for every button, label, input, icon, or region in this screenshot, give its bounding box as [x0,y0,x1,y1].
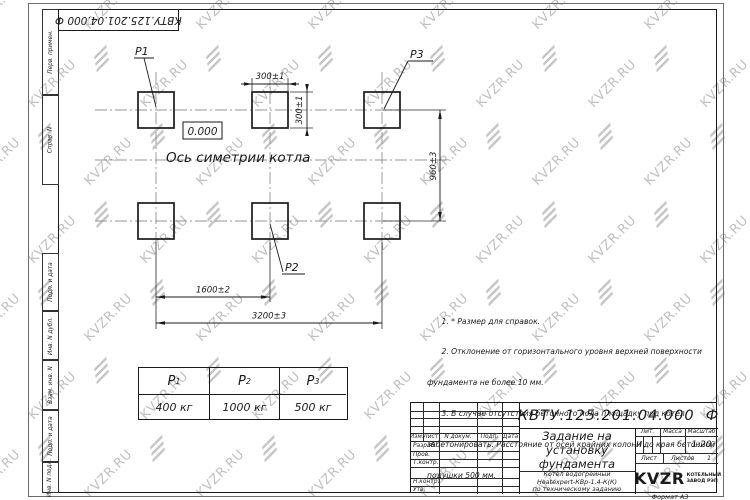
tb-document-title: Задание на установку фундамента [519,428,635,471]
tb-line [652,436,653,453]
tb-line [643,436,644,453]
tb-mass-value: - [660,436,685,453]
p-sub: 1 [175,377,180,386]
p-sub: 2 [246,377,251,386]
arrow [305,84,309,92]
load-table-header-p3: P3 [279,368,346,394]
tb-scale-header: Масштаб [685,428,718,436]
tb-col-ndocum: N докум. [439,433,477,441]
label-p3: P3 [410,48,424,61]
tb-row-utv: Утв. [411,486,439,494]
tb-lit-value: И [635,436,643,453]
arrow [156,295,165,299]
p-base: P [238,374,246,389]
tb-sheet-label: Лист [635,453,663,463]
load-value-p2: 1000 кг [209,394,279,419]
tb-product-name: Котел водогрейный Heatexpert-КВр-1,4-К(К… [519,471,635,494]
kvzr-logo-subtext: КОТЕЛЬНЫЙ ЗАВОД РЭП [687,473,721,484]
dim-text-col-spacing: 1600±2 [196,286,230,296]
arrow [156,321,165,325]
tb-sheets-value: 1 [703,453,715,463]
arrow [305,128,309,136]
arrow [244,82,252,86]
tb-col-list: Лист [423,433,440,441]
tb-col-data: Дата [502,433,519,441]
tb-line [477,403,478,494]
tb-scale-value: 1:20 [685,436,718,453]
p-sub: 3 [314,377,319,386]
arrow [373,321,382,325]
tb-row-nkontr: Н.контр. [411,478,439,486]
leader-p2 [270,224,283,272]
tb-row-blank [411,467,439,478]
load-value-p3: 500 кг [279,394,346,419]
title-line: Задание на [542,429,612,443]
tb-mass-header: Масса [660,428,685,436]
label-p2: P2 [285,261,299,274]
elevation-value: 0.000 [187,126,217,138]
title-block: Изм. Лист N докум. Подп. Дата Разраб. Пр… [410,402,717,493]
logo-sub-line: ЗАВОД РЭП [687,479,721,485]
p-base: P [307,374,315,389]
title-line: установку [546,443,608,457]
tb-line [411,426,519,427]
tb-row-prov: Пров. [411,451,439,459]
tb-col-izm: Изм. [411,433,423,441]
tb-line [411,418,519,419]
note-line: 1. * Размер для справок. [427,317,723,327]
label-p1: P1 [135,45,149,58]
tb-col-podp: Подп. [477,433,502,441]
note-line: 2. Отклонение от горизонтального уровня … [427,347,723,357]
title-line: фундамента [539,457,615,471]
dim-text-row-spacing: 960±3 [429,152,439,181]
axis-caption: Ось симетрии котла [166,150,310,166]
p-base: P [168,374,176,389]
tb-row-razrab: Разраб. [411,441,439,451]
leader-p1 [144,58,156,107]
arrow [261,295,270,299]
arrow [438,110,442,119]
load-table-header-p2: P2 [209,368,279,394]
note-line: фундамента не более 10 мм. [427,378,723,388]
product-line: по техническому заданию [533,486,622,493]
format-note: Формат А3 [620,493,720,500]
leader-p3 [384,61,408,109]
tb-line [502,403,503,494]
dim-text-pad-width: 300±1 [256,72,285,82]
load-table-header-p1: P1 [139,368,209,394]
kvzr-logo-text: KVZR [634,469,685,488]
load-value-p1: 400 кг [139,394,209,419]
dim-text-total-width: 3200±3 [252,312,286,322]
tb-company-logo: KVZR КОТЕЛЬНЫЙ ЗАВОД РЭП [635,463,718,494]
logo-sub-line: КОТЕЛЬНЫЙ [687,473,721,479]
arrow [438,212,442,221]
load-table: P1 P2 P3 400 кг 1000 кг 500 кг [138,367,348,420]
drawing-sheet: KVZR.RUKVZR.RUKVZR.RUKVZR.RUKVZR.RUKVZR.… [0,0,750,500]
tb-line [411,411,519,412]
arrow [288,82,296,86]
dim-text-pad-height: 300±1 [295,96,305,125]
tb-row-tkontr: Т.контр. [411,459,439,467]
tb-lit-header: Лит. [635,428,660,436]
tb-designation: КВТУ.125.201.04.000 Ф [519,403,718,428]
